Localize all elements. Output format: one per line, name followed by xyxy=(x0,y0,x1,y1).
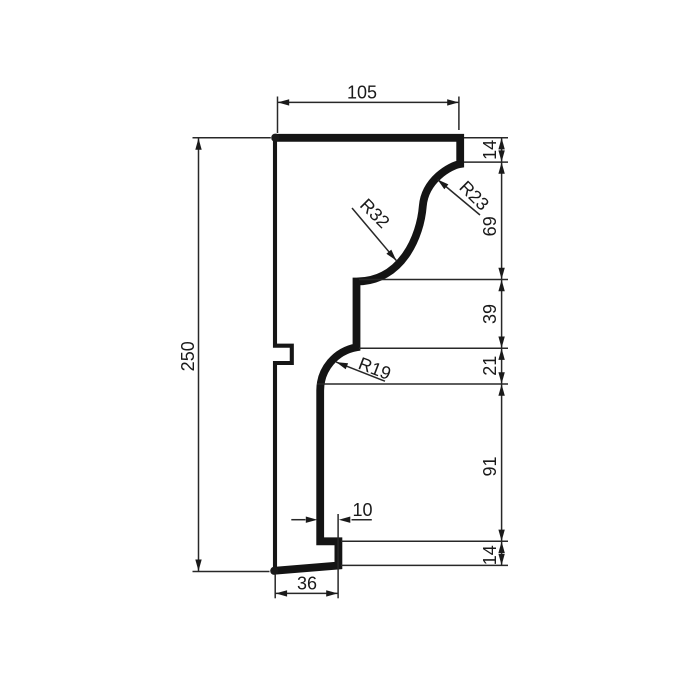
svg-text:14: 14 xyxy=(480,545,500,565)
svg-text:21: 21 xyxy=(480,356,500,376)
svg-text:14: 14 xyxy=(480,140,500,160)
svg-text:39: 39 xyxy=(480,304,500,324)
svg-text:36: 36 xyxy=(297,573,317,593)
svg-text:105: 105 xyxy=(347,83,377,103)
svg-text:69: 69 xyxy=(480,216,500,236)
svg-text:250: 250 xyxy=(178,341,198,371)
svg-text:10: 10 xyxy=(352,500,372,520)
svg-text:91: 91 xyxy=(480,456,500,476)
